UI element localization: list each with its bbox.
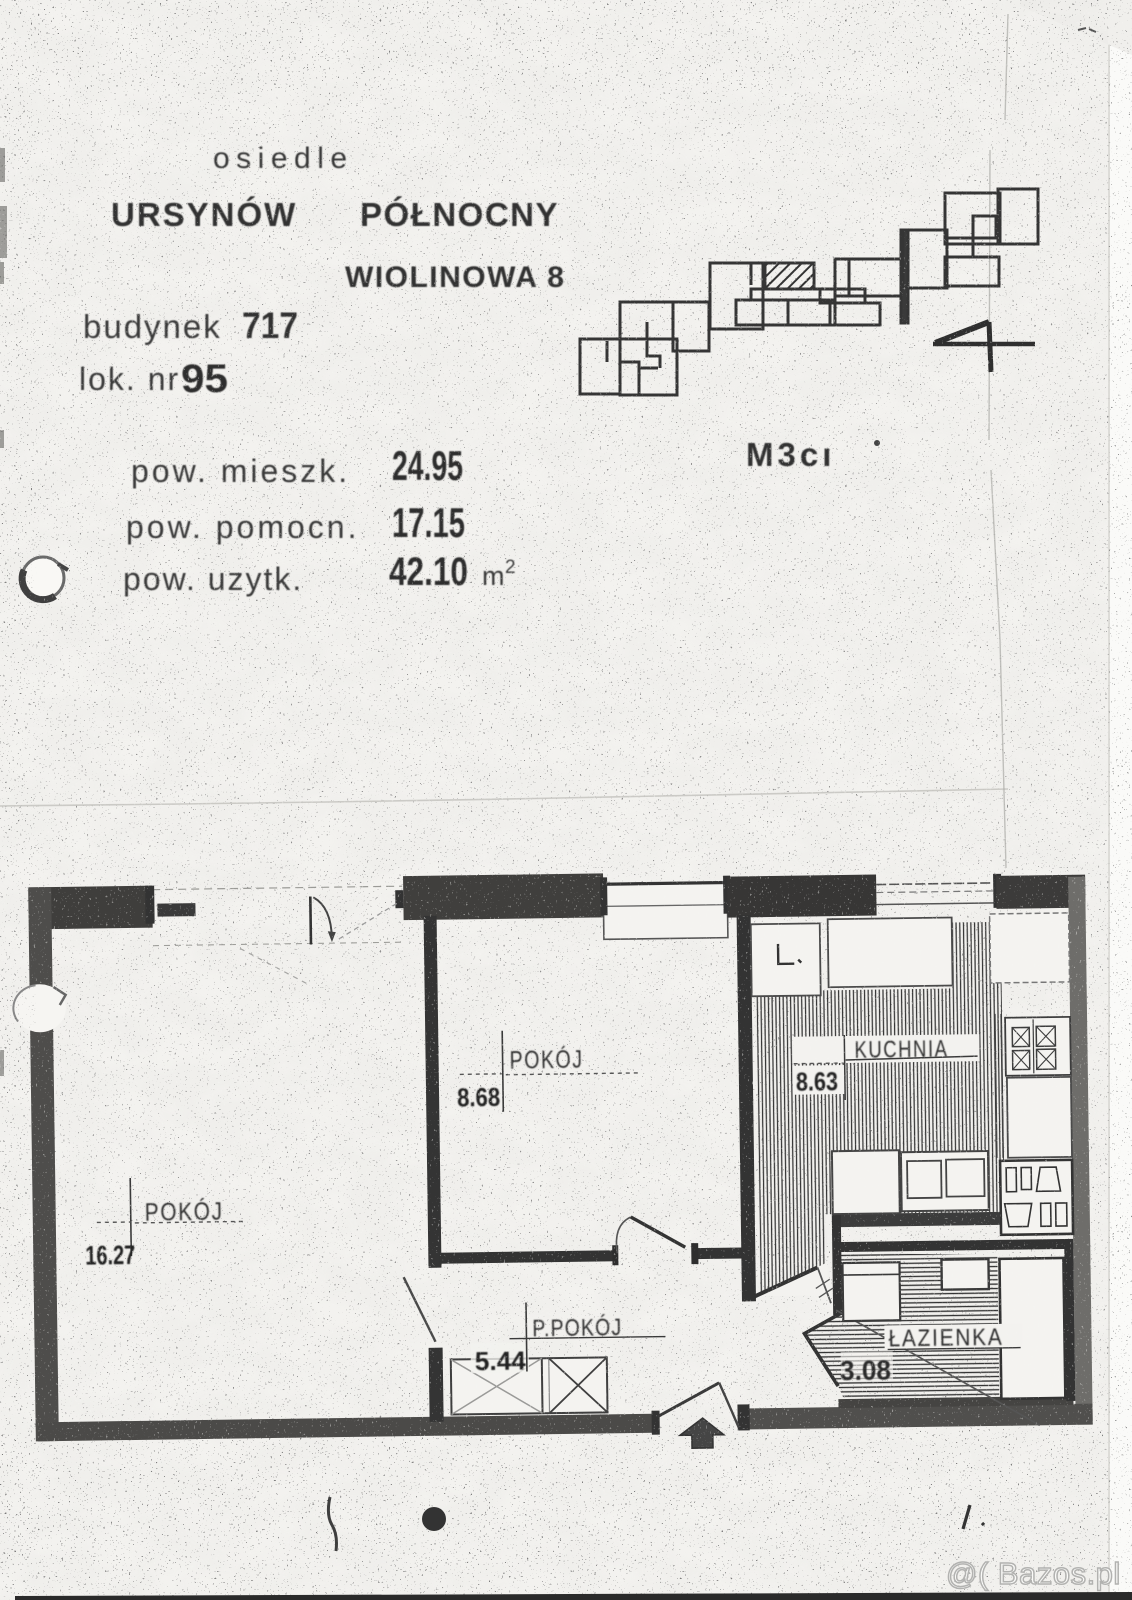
svg-text:@( Bazos.pl: @( Bazos.pl xyxy=(946,1556,1121,1591)
